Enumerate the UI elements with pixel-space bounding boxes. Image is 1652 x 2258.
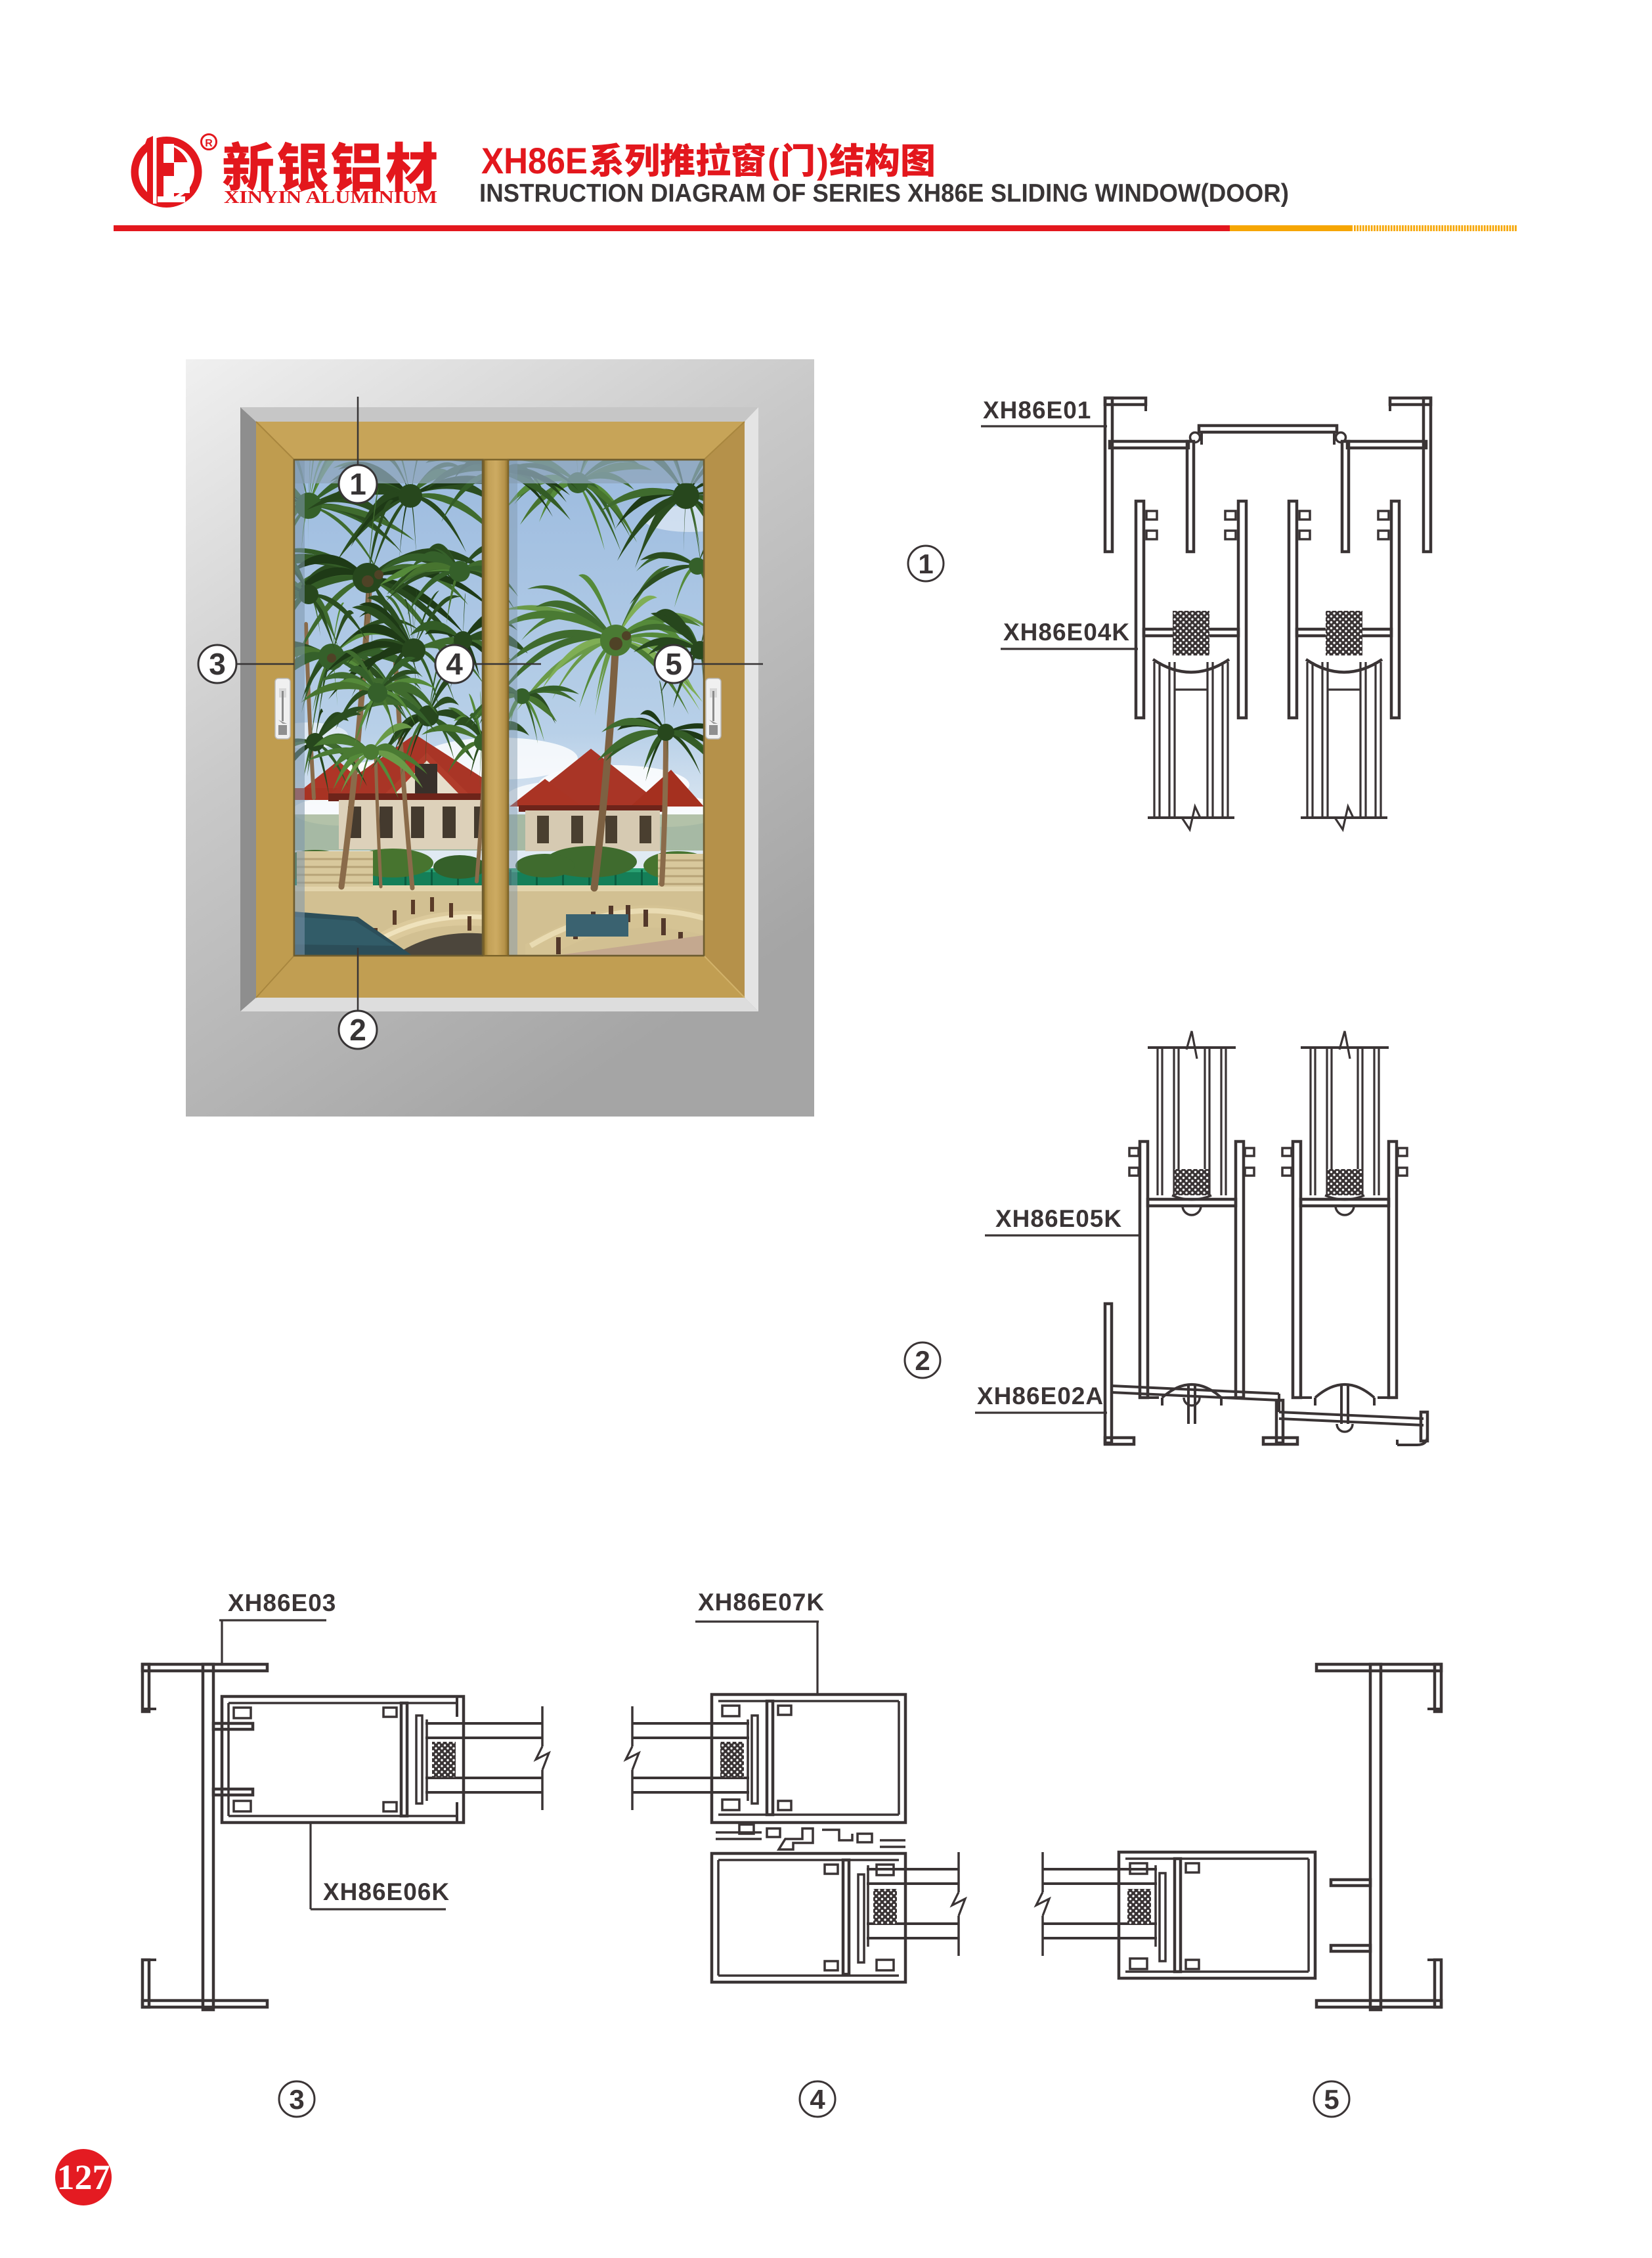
svg-text:XH86E06K: XH86E06K [323,1878,450,1905]
svg-text:1: 1 [918,548,933,579]
svg-text:2: 2 [915,1345,930,1376]
svg-text:XH86E: XH86E [481,140,588,181]
svg-text:2: 2 [349,1013,366,1047]
svg-text:3: 3 [209,647,226,681]
svg-text:XH86E04K: XH86E04K [1003,619,1130,646]
svg-text:5: 5 [1324,2084,1339,2115]
svg-text:1: 1 [349,467,366,501]
svg-text:4: 4 [446,647,463,681]
svg-text:(: ( [768,142,779,181]
svg-text:XH86E02A: XH86E02A [977,1383,1104,1409]
svg-text:4: 4 [810,2084,825,2115]
svg-text:127: 127 [57,2158,110,2197]
svg-text:R: R [205,138,213,149]
svg-text:XH86E07K: XH86E07K [698,1589,825,1616]
svg-text:XH86E01: XH86E01 [983,397,1091,424]
svg-text:5: 5 [665,647,682,681]
svg-text:3: 3 [289,2084,304,2115]
svg-text:XH86E05K: XH86E05K [995,1205,1122,1232]
svg-text:XINYIN ALUMINIUM: XINYIN ALUMINIUM [224,187,437,207]
svg-text:INSTRUCTION DIAGRAM OF SERIES: INSTRUCTION DIAGRAM OF SERIES XH86E SLID… [479,179,1289,208]
svg-text:): ) [817,142,829,181]
svg-text:XH86E03: XH86E03 [228,1589,336,1616]
